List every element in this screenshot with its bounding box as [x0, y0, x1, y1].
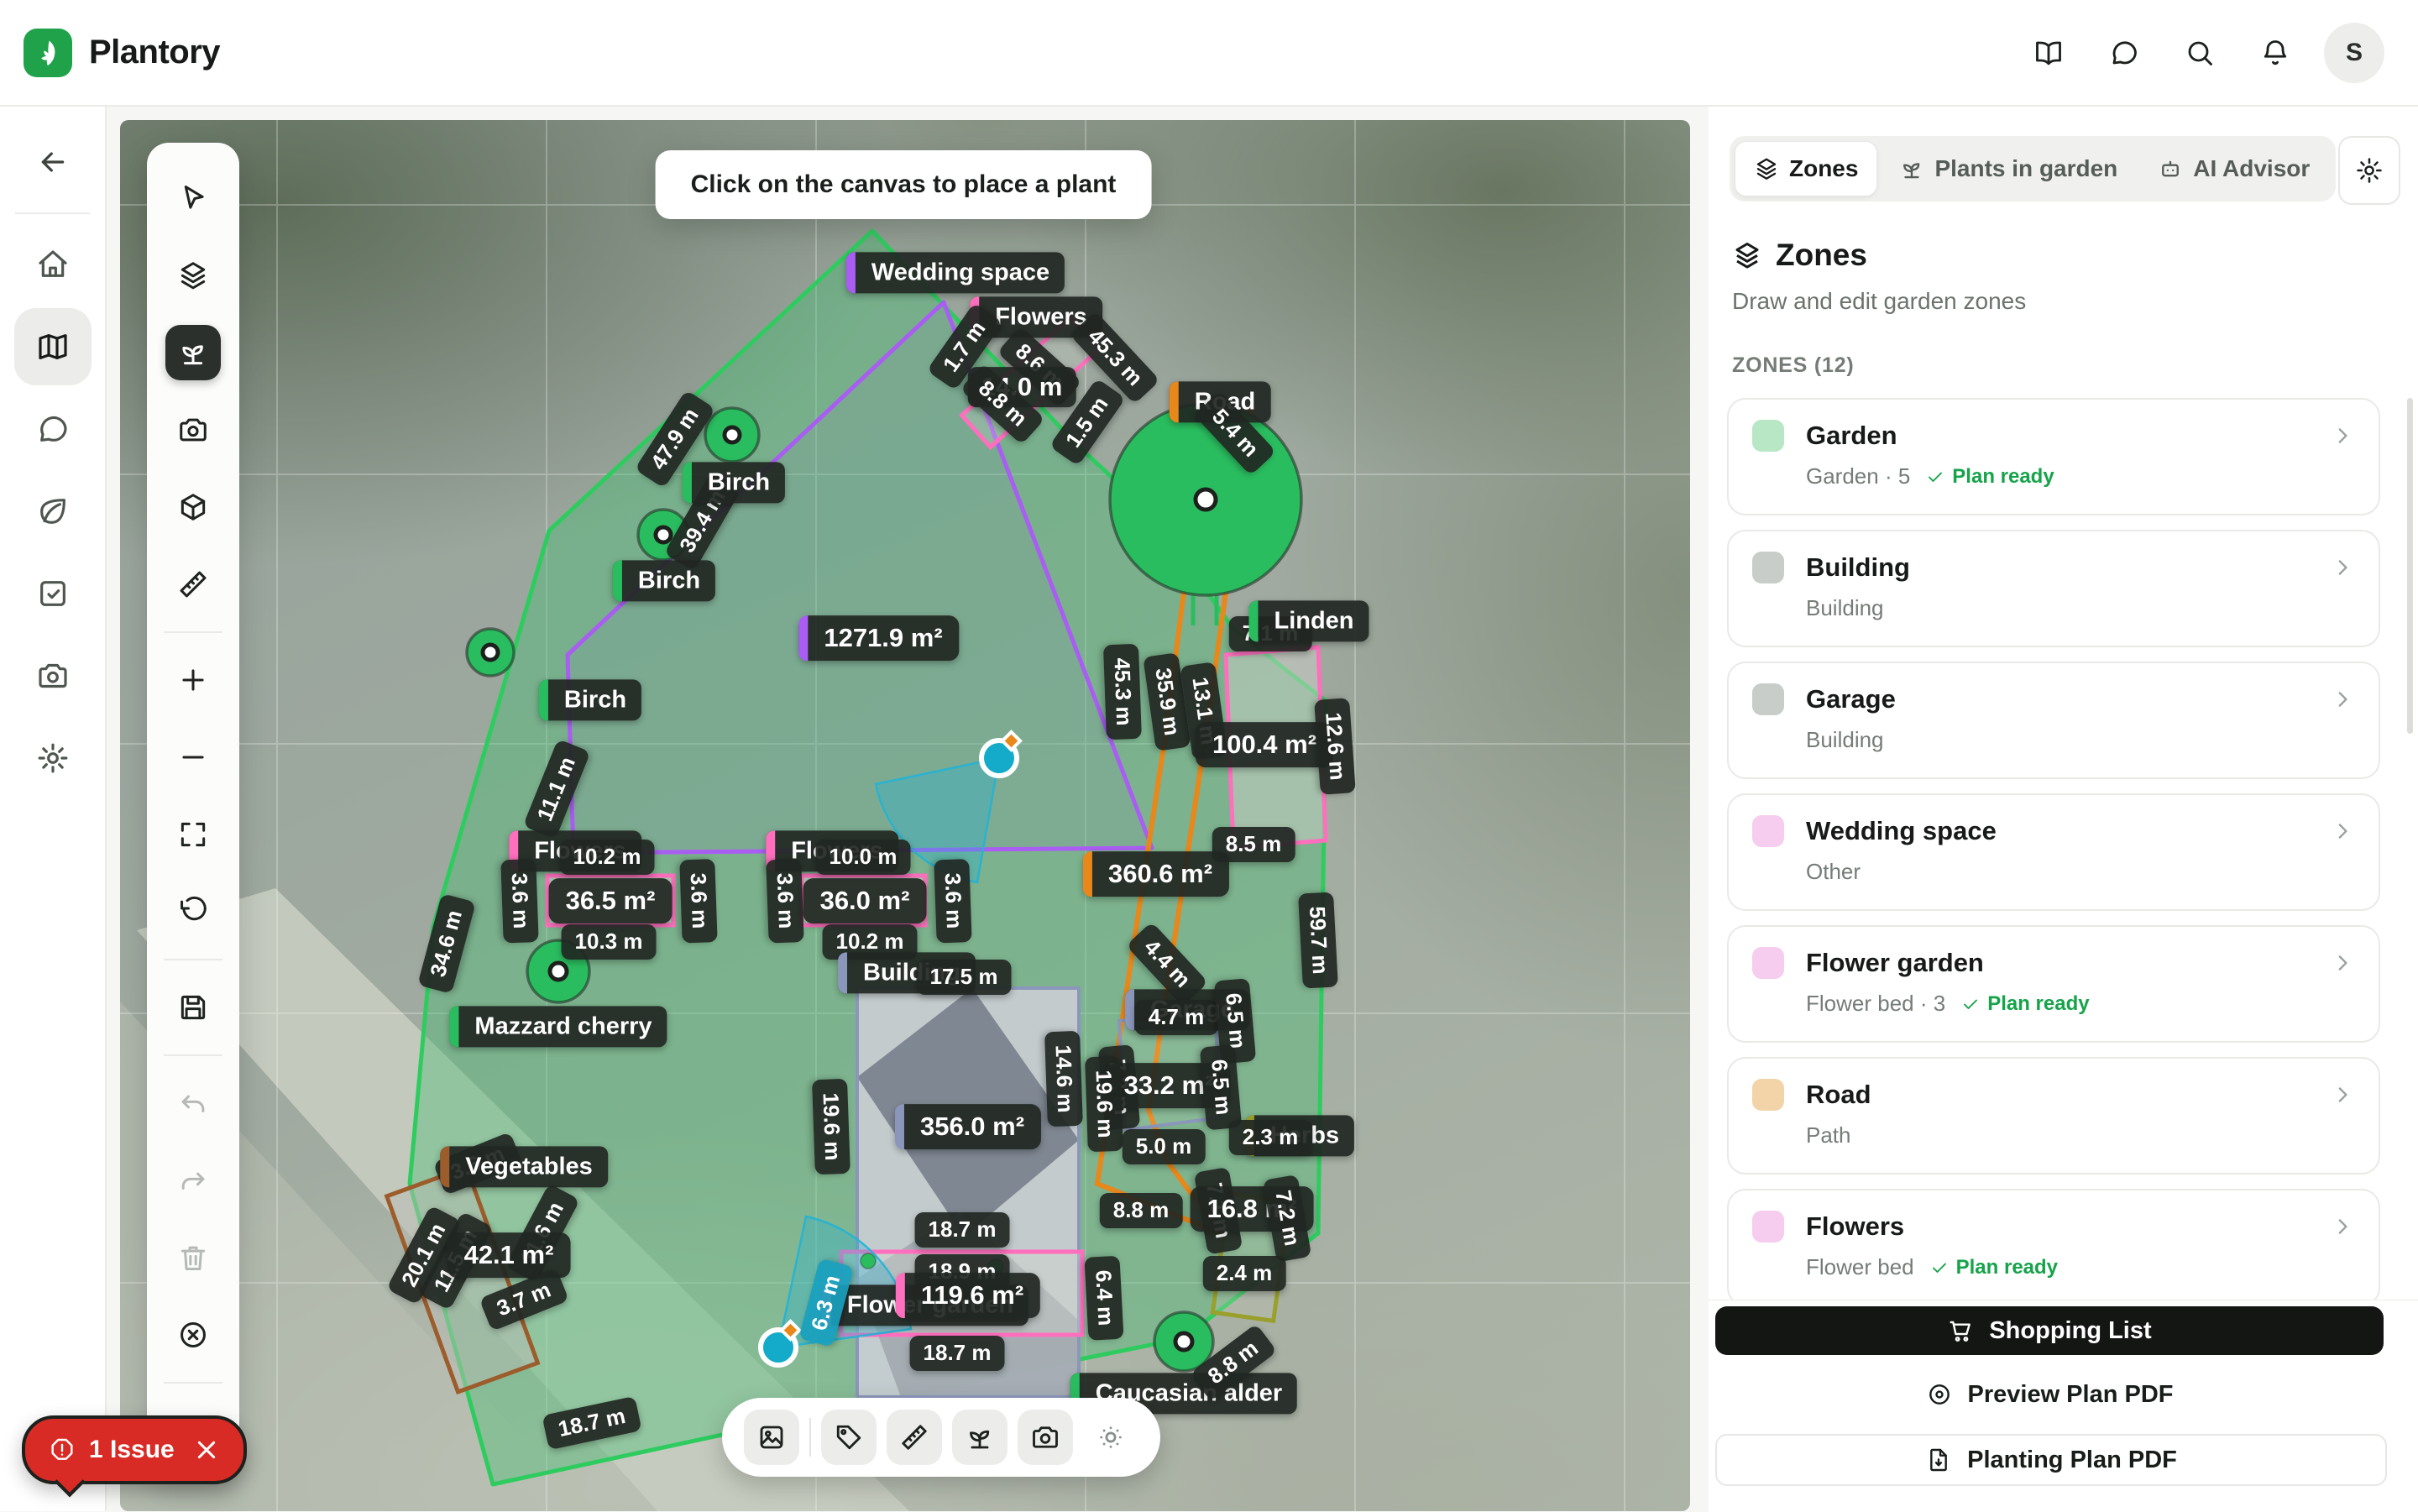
layers-icon	[1732, 240, 1762, 270]
zone-name: Road	[1806, 1080, 1871, 1110]
sidebar-item-photos[interactable]	[14, 637, 92, 714]
brand[interactable]: Plantory	[24, 29, 220, 77]
undo-button[interactable]	[165, 1075, 221, 1131]
zone-color-swatch	[1752, 947, 1784, 979]
plan-ready-badge: Plan ready	[1929, 1256, 2058, 1279]
zone-name: Garden	[1806, 421, 1897, 451]
zone-color-swatch	[1752, 1211, 1784, 1243]
sidebar-item-tasks[interactable]	[14, 555, 92, 632]
measure-tool-button[interactable]	[887, 1410, 942, 1465]
panel-settings-button[interactable]	[2338, 136, 2400, 205]
zones-tool-button[interactable]	[165, 248, 221, 303]
select-tool-button[interactable]	[165, 170, 221, 226]
rail-divider	[164, 1054, 222, 1056]
panel-subtitle: Draw and edit garden zones	[1732, 288, 2026, 315]
zone-color-swatch	[1752, 683, 1784, 715]
zone-type: Other	[1806, 859, 1861, 885]
app-header: Plantory S	[0, 0, 2418, 107]
zone-type: Path	[1806, 1122, 1851, 1148]
background-image-tool-button[interactable]	[744, 1410, 799, 1465]
sidebar-item-chat[interactable]	[14, 390, 92, 468]
shopping-list-button[interactable]: Shopping List	[1715, 1306, 2384, 1355]
plant-dot-1	[861, 1253, 876, 1269]
zone-flowers-bed-2[interactable]	[802, 876, 925, 925]
zone-type: Building	[1806, 595, 1884, 621]
canvas-bottom-toolbar	[722, 1398, 1160, 1477]
zone-garage-polygon[interactable]	[1119, 1010, 1221, 1130]
avatar[interactable]: S	[2324, 23, 2384, 83]
chevron-right-icon[interactable]	[2330, 555, 2355, 580]
zone-name: Building	[1806, 552, 1910, 583]
cart-icon	[1947, 1317, 1974, 1344]
search-icon[interactable]	[2173, 26, 2227, 80]
zone-name: Garage	[1806, 684, 1896, 714]
viewpoint-tool-button[interactable]	[1018, 1410, 1073, 1465]
sidebar-item-settings[interactable]	[14, 719, 92, 797]
zone-name: Flowers	[1806, 1211, 1904, 1242]
zone-color-swatch	[1752, 1079, 1784, 1111]
plan-ready-badge: Plan ready	[1925, 465, 2054, 489]
plant-tool-button[interactable]	[952, 1410, 1007, 1465]
measure-tool-button[interactable]	[165, 557, 221, 612]
delete-button[interactable]	[165, 1230, 221, 1285]
rail-divider	[164, 959, 222, 960]
zone-card-flowers[interactable]: Flowers Flower bed Plan ready	[1727, 1189, 2380, 1306]
issue-close-icon[interactable]	[193, 1436, 220, 1463]
back-icon[interactable]	[14, 123, 92, 201]
cancel-button[interactable]	[165, 1307, 221, 1363]
zone-name: Wedding space	[1806, 816, 1997, 846]
zone-color-swatch	[1752, 815, 1784, 847]
planting-plan-pdf-button[interactable]: Planting Plan PDF	[1715, 1434, 2387, 1486]
app-name: Plantory	[89, 34, 220, 71]
chevron-right-icon[interactable]	[2330, 819, 2355, 844]
chevron-right-icon[interactable]	[2330, 1082, 2355, 1107]
zone-color-swatch	[1752, 420, 1784, 452]
zone-type: Flower bed	[1806, 1254, 1914, 1280]
label-tool-button[interactable]	[821, 1410, 877, 1465]
zone-card-building[interactable]: Building Building	[1727, 530, 2380, 647]
tab-ai-advisor[interactable]: AI Advisor	[2139, 142, 2328, 196]
rail-divider	[164, 631, 222, 633]
plant-tool-button[interactable]	[165, 325, 221, 380]
panel-scrollbar[interactable]	[2407, 398, 2413, 734]
sidebar-item-plants[interactable]	[14, 473, 92, 550]
reset-rotation-button[interactable]	[165, 884, 221, 939]
alert-octagon-icon	[49, 1436, 76, 1463]
preview-plan-pdf-button[interactable]: Preview Plan PDF	[1715, 1370, 2384, 1419]
sidebar	[0, 105, 107, 1511]
chat-icon[interactable]	[2097, 26, 2151, 80]
toolbar-divider	[809, 1418, 811, 1457]
zone-name: Flower garden	[1806, 948, 1984, 978]
chevron-right-icon[interactable]	[2330, 423, 2355, 448]
docs-icon[interactable]	[2022, 26, 2075, 80]
zone-card-garage[interactable]: Garage Building	[1727, 662, 2380, 779]
file-download-icon	[1925, 1447, 1952, 1473]
zone-type: Garden · 5	[1806, 463, 1910, 489]
tab-plants-in-garden[interactable]: Plants in garden	[1881, 142, 2136, 196]
sidebar-item-map[interactable]	[14, 308, 92, 385]
zoom-in-button[interactable]	[165, 652, 221, 708]
zone-color-swatch	[1752, 552, 1784, 583]
camera-tool-button[interactable]	[165, 402, 221, 458]
app-logo-icon	[24, 29, 72, 77]
save-plan-button[interactable]	[165, 980, 221, 1035]
rail-divider	[164, 1382, 222, 1384]
tool-rail	[147, 143, 239, 1484]
panel-title: Zones	[1776, 238, 1867, 273]
issue-badge[interactable]: 1 Issue	[22, 1415, 247, 1484]
zone-card-road[interactable]: Road Path	[1727, 1057, 2380, 1175]
notifications-icon[interactable]	[2248, 26, 2302, 80]
sidebar-item-home[interactable]	[14, 226, 92, 303]
plan-ready-badge: Plan ready	[1960, 992, 2089, 1016]
redo-button[interactable]	[165, 1153, 221, 1208]
zone-card-flower-garden[interactable]: Flower garden Flower bed · 3 Plan ready	[1727, 925, 2380, 1043]
chevron-right-icon[interactable]	[2330, 687, 2355, 712]
plant-dot-2	[988, 1259, 1003, 1274]
zone-flowers-bed-large[interactable]	[1226, 647, 1326, 848]
fit-view-button[interactable]	[165, 807, 221, 862]
zone-type: Flower bed · 3	[1806, 991, 1945, 1017]
chevron-right-icon[interactable]	[2330, 950, 2355, 976]
map-canvas[interactable]: Wedding spaceFlowers1.7 m45.3 m8.6 m14.0…	[120, 120, 1690, 1511]
preview-icon	[1926, 1381, 1953, 1408]
map-overlay	[120, 120, 1690, 1511]
zone-flowers-bed-1[interactable]	[547, 876, 673, 925]
zone-card-garden[interactable]: Garden Garden · 5 Plan ready	[1727, 398, 2380, 515]
tab-zones[interactable]: Zones	[1735, 141, 1877, 196]
panel-tabs: ZonesPlants in gardenAI Advisor	[1730, 136, 2336, 201]
issue-label: 1 Issue	[89, 1436, 175, 1464]
canvas-tooltip: Click on the canvas to place a plant	[656, 150, 1152, 219]
sidebar-divider	[15, 212, 90, 214]
panel-title-row: Zones	[1732, 238, 1867, 273]
zone-type: Building	[1806, 727, 1884, 753]
object-tool-button[interactable]	[165, 479, 221, 535]
chevron-right-icon[interactable]	[2330, 1214, 2355, 1239]
panel-footer: Shopping List Preview Plan PDF Planting …	[1709, 1300, 2418, 1512]
right-panel: ZonesPlants in gardenAI Advisor Zones Dr…	[1709, 105, 2418, 1511]
zone-list: Garden Garden · 5 Plan ready Building Bu…	[1727, 398, 2380, 1321]
zoom-out-button[interactable]	[165, 730, 221, 785]
zones-section-header: ZONES (12)	[1732, 353, 1855, 378]
header-actions: S	[2022, 23, 2384, 83]
sunlight-tool-button[interactable]	[1083, 1410, 1138, 1465]
zone-card-wedding-space[interactable]: Wedding space Other	[1727, 793, 2380, 911]
